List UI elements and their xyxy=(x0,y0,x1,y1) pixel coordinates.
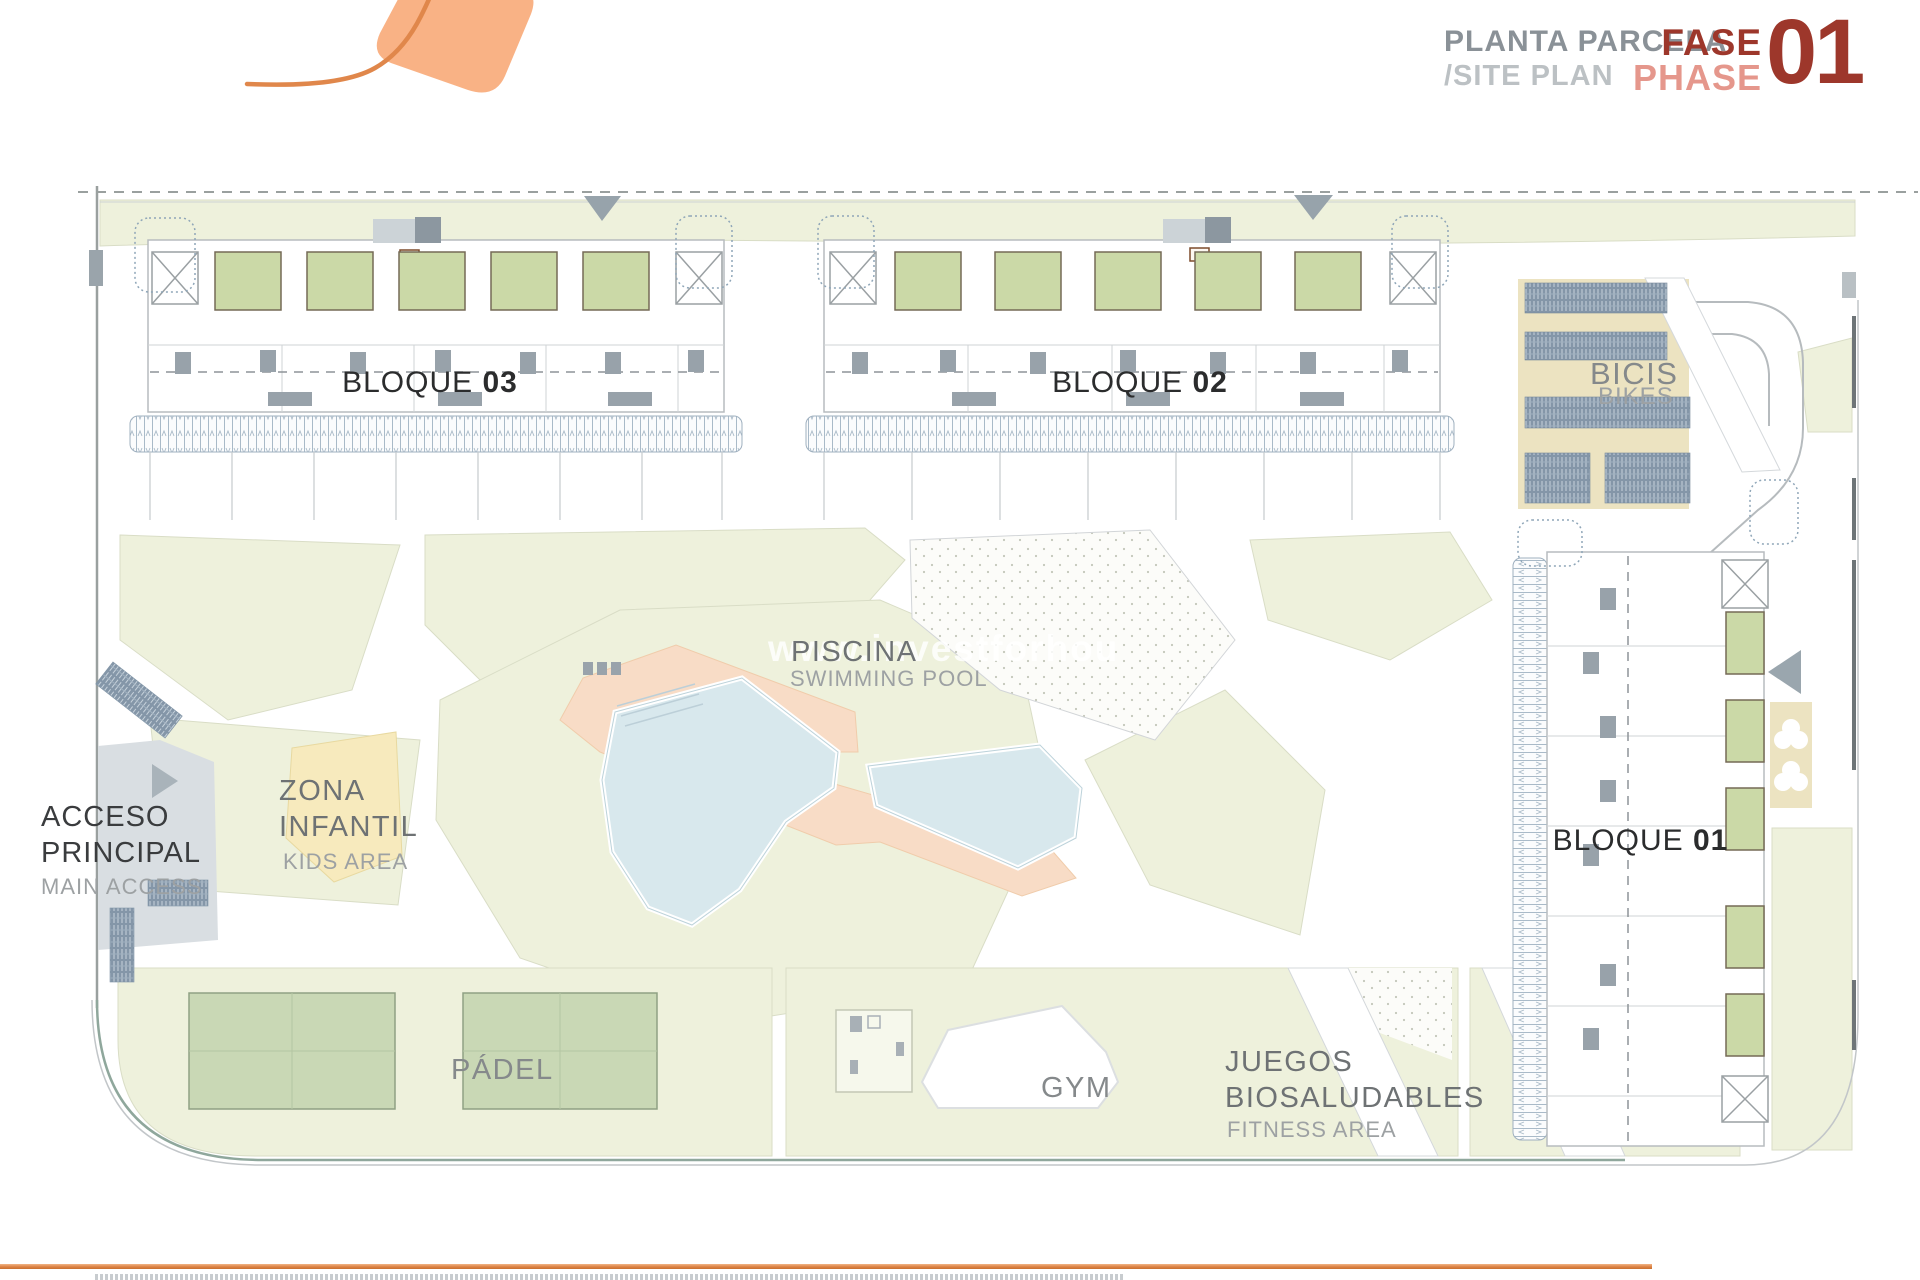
pergola-strip xyxy=(806,416,1454,452)
bikes-label: BIKES xyxy=(1598,385,1674,409)
zona-label: ZONA xyxy=(279,777,366,806)
pergola-strip-vertical xyxy=(1513,558,1547,1140)
padel-label: PÁDEL xyxy=(451,1056,554,1085)
biosaludables-label: BIOSALUDABLES xyxy=(1225,1084,1485,1113)
site-plan-page: PLANTA PARCELA /SITE PLAN FASE PHASE 01 … xyxy=(0,0,1920,1280)
bloque-01-label: BLOQUE 01 xyxy=(1548,826,1733,856)
green-top-band xyxy=(100,200,1855,246)
bike-rack-row xyxy=(1525,453,1590,503)
green-top-left xyxy=(120,535,400,720)
juegos-label: JUEGOS xyxy=(1225,1048,1353,1077)
principal-label: PRINCIPAL xyxy=(41,839,201,868)
phase-number: 01 xyxy=(1766,6,1862,98)
vehicle-access-arrow-icon xyxy=(1768,650,1801,694)
pool-loungers xyxy=(583,662,621,675)
parking-bays xyxy=(150,452,722,520)
parking-bays xyxy=(824,452,1440,520)
piscina-label: PISCINA xyxy=(791,638,918,667)
green-mid-right xyxy=(1250,532,1492,660)
bike-rack-row xyxy=(1605,453,1690,503)
page-title-en: /SITE PLAN xyxy=(1444,62,1614,91)
green-top-right-wedge xyxy=(1798,338,1852,432)
fitness-pavilion xyxy=(836,1010,912,1092)
green-right-of-b01 xyxy=(1772,828,1852,1150)
bike-rack-row xyxy=(1525,283,1667,313)
footer-orange-rule xyxy=(0,1264,1652,1269)
main-access-label: MAIN ACCESS xyxy=(41,876,202,898)
fine-print-strip xyxy=(95,1274,1125,1280)
fitness-area-label: FITNESS AREA xyxy=(1227,1119,1397,1141)
phase-label: PHASE xyxy=(1612,60,1762,96)
parking-strip-b xyxy=(110,908,134,982)
infantil-label: INFANTIL xyxy=(279,813,418,842)
acceso-label: ACCESO xyxy=(41,803,169,832)
swimming-pool-label: SWIMMING POOL xyxy=(790,668,988,690)
fase-label: FASE xyxy=(1612,24,1762,61)
tan-tree-strip xyxy=(1770,702,1812,808)
brand-logo xyxy=(247,0,533,93)
kids-area-label: KIDS AREA xyxy=(283,851,408,873)
bloque-02-label: BLOQUE 02 xyxy=(1040,368,1240,398)
pergola-strip xyxy=(130,416,742,452)
gym-label: GYM xyxy=(1041,1074,1112,1103)
bloque-03-label: BLOQUE 03 xyxy=(330,368,530,398)
